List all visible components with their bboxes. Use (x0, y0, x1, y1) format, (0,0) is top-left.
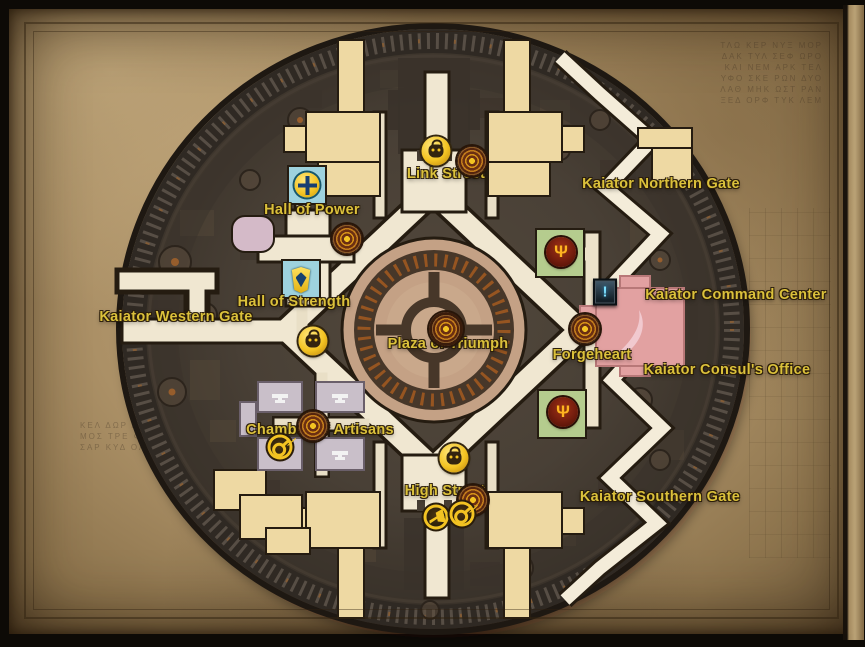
merchant-icon[interactable] (299, 327, 328, 356)
page-edge (843, 5, 864, 640)
coin-pouch-glyph (306, 335, 321, 348)
flight-master-icon[interactable]: Ψ (548, 397, 578, 427)
campfire-icon[interactable] (457, 146, 487, 176)
wings-glyph: Ψ (556, 402, 570, 422)
marker-layer: ! Ψ Ψ (0, 0, 865, 647)
hall-of-power-icon[interactable] (295, 173, 320, 198)
key-merchant-icon[interactable] (271, 438, 290, 457)
exclamation-glyph: ! (603, 284, 608, 301)
coin-pouch-glyph (429, 145, 444, 158)
hall-of-strength-icon[interactable] (290, 267, 313, 293)
campfire-icon[interactable] (332, 224, 362, 254)
forgeheart-marker-icon[interactable] (570, 314, 600, 344)
crier-icon[interactable] (427, 508, 446, 527)
key-glyph (266, 433, 294, 461)
shield-glyph (290, 267, 313, 293)
coin-pouch-glyph (447, 452, 462, 465)
plaza-marker-icon[interactable] (429, 312, 463, 346)
horn-glyph (427, 508, 446, 525)
map-screen: ΤΛΩ ΚΕΡ ΝΥΞ ΜΟΡ ΔΑΚ ΤΥΛ ΣΕΦ ΩΡΟ ΚΑΙ ΝΕΜ … (0, 0, 865, 647)
campfire-icon[interactable] (298, 411, 328, 441)
flight-master-icon[interactable]: Ψ (546, 237, 576, 267)
quest-icon[interactable]: ! (593, 279, 617, 306)
merchant-icon[interactable] (422, 137, 451, 166)
wings-glyph: Ψ (554, 242, 568, 262)
merchant-icon[interactable] (440, 444, 469, 473)
key-merchant-icon[interactable] (453, 505, 472, 524)
